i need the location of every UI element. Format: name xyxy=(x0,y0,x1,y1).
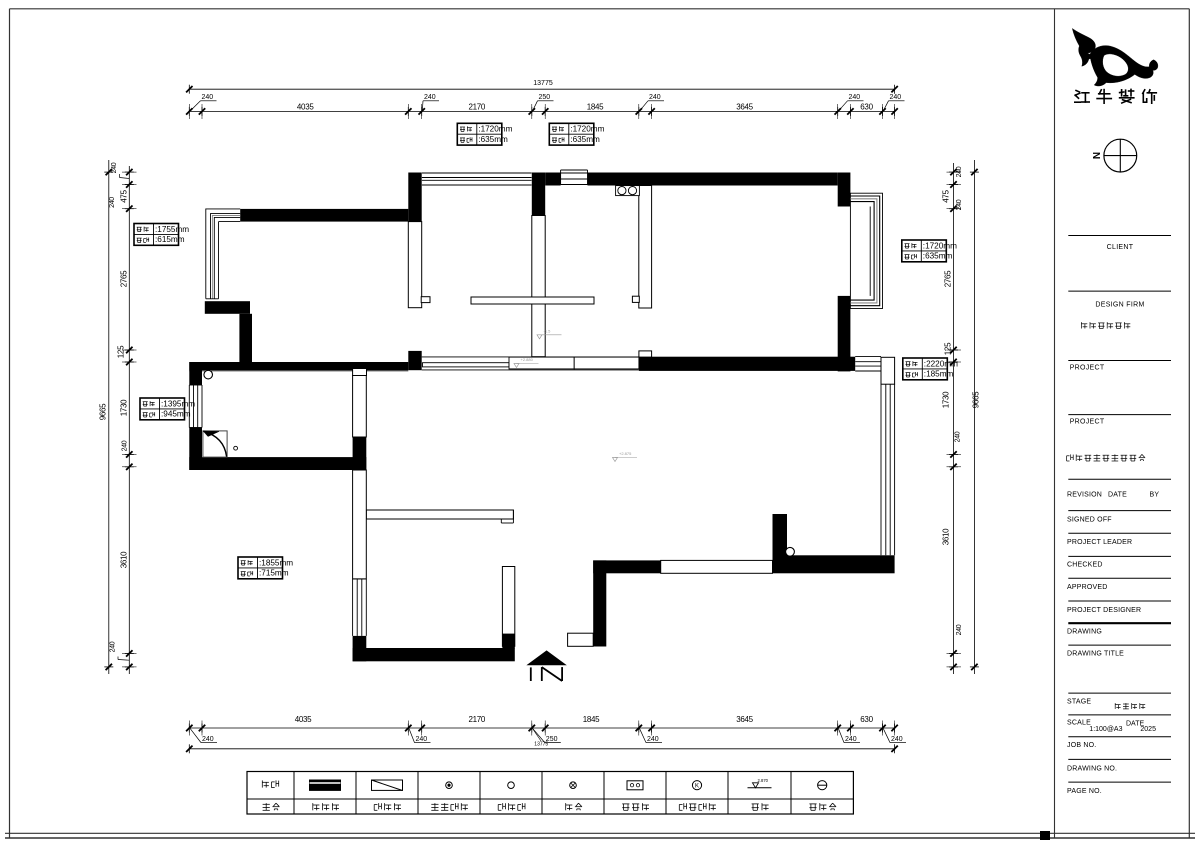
svg-text:K: K xyxy=(695,783,699,789)
svg-text:3645: 3645 xyxy=(736,102,753,111)
svg-text:DESIGN FIRM: DESIGN FIRM xyxy=(1095,301,1144,308)
svg-text:PROJECT: PROJECT xyxy=(1070,365,1105,372)
svg-text:PAGE NO.: PAGE NO. xyxy=(1067,788,1102,795)
svg-text:DATE: DATE xyxy=(1108,491,1127,498)
svg-text::1720mm: :1720mm xyxy=(478,125,512,134)
svg-text:13775: 13775 xyxy=(533,80,553,87)
svg-text:-1.5: -1.5 xyxy=(544,328,552,333)
svg-text:240: 240 xyxy=(647,736,659,743)
svg-text:630: 630 xyxy=(860,102,873,111)
svg-text:2170: 2170 xyxy=(468,715,485,724)
svg-text:3610: 3610 xyxy=(942,528,951,545)
svg-text:3645: 3645 xyxy=(736,715,753,724)
svg-text:240: 240 xyxy=(109,197,116,208)
svg-text:PROJECT DESIGNER: PROJECT DESIGNER xyxy=(1067,607,1141,614)
svg-text:SCALE: SCALE xyxy=(1067,720,1091,727)
svg-text:240: 240 xyxy=(956,624,963,635)
svg-text:2170: 2170 xyxy=(468,102,485,111)
svg-text:PROJECT: PROJECT xyxy=(1070,418,1105,425)
svg-text:STAGE: STAGE xyxy=(1067,699,1091,706)
svg-text:240: 240 xyxy=(649,94,661,101)
svg-text::635mm: :635mm xyxy=(570,135,600,144)
svg-text:240: 240 xyxy=(956,166,963,177)
svg-text::635mm: :635mm xyxy=(478,135,508,144)
svg-text:1845: 1845 xyxy=(587,102,604,111)
svg-text:240: 240 xyxy=(202,94,214,101)
svg-text::185mm: :185mm xyxy=(924,370,954,379)
svg-text:630: 630 xyxy=(860,715,873,724)
svg-text:1730: 1730 xyxy=(942,391,951,408)
svg-text:250: 250 xyxy=(539,94,551,101)
svg-text:1730: 1730 xyxy=(120,399,129,416)
svg-text:13775: 13775 xyxy=(534,742,548,748)
svg-text:240: 240 xyxy=(202,736,214,743)
svg-text:DRAWING: DRAWING xyxy=(1067,629,1102,636)
svg-text:240: 240 xyxy=(891,736,903,743)
svg-text:4035: 4035 xyxy=(297,102,314,111)
svg-text:4035: 4035 xyxy=(295,715,312,724)
svg-text:PROJECT LEADER: PROJECT LEADER xyxy=(1067,539,1132,546)
svg-text:240: 240 xyxy=(955,431,962,442)
svg-text:2.870: 2.870 xyxy=(758,778,769,783)
svg-text:125: 125 xyxy=(117,345,126,358)
svg-text:BY: BY xyxy=(1150,491,1160,498)
svg-text:240: 240 xyxy=(849,94,861,101)
svg-text:240: 240 xyxy=(845,736,857,743)
svg-text::635mm: :635mm xyxy=(923,252,953,261)
svg-text:N: N xyxy=(1092,152,1103,159)
svg-text:2765: 2765 xyxy=(944,270,953,287)
svg-text::1720mm: :1720mm xyxy=(570,125,604,134)
svg-text::1855mm: :1855mm xyxy=(259,558,293,567)
svg-text:DRAWING TITLE: DRAWING TITLE xyxy=(1067,651,1124,658)
svg-text:+2.880: +2.880 xyxy=(521,357,534,362)
svg-text:CHECKED: CHECKED xyxy=(1067,562,1103,569)
svg-text:475: 475 xyxy=(120,189,129,202)
svg-text:240: 240 xyxy=(110,641,117,652)
svg-text:2765: 2765 xyxy=(120,270,129,287)
svg-text:DRAWING NO.: DRAWING NO. xyxy=(1067,765,1117,772)
svg-text::1720mm: :1720mm xyxy=(923,241,957,250)
svg-text:SIGNED OFF: SIGNED OFF xyxy=(1067,517,1112,524)
svg-text:475: 475 xyxy=(942,189,951,202)
svg-text::715mm: :715mm xyxy=(259,569,289,578)
svg-text:REVISION: REVISION xyxy=(1067,491,1102,498)
svg-text:+2.875: +2.875 xyxy=(619,451,632,456)
svg-text:125: 125 xyxy=(944,342,953,355)
svg-text:APPROVED: APPROVED xyxy=(1067,584,1108,591)
svg-text:2025: 2025 xyxy=(1140,726,1156,733)
svg-text:240: 240 xyxy=(956,199,963,210)
svg-text:9665: 9665 xyxy=(99,403,108,420)
svg-text:JOB NO.: JOB NO. xyxy=(1067,742,1096,749)
svg-text::945mm: :945mm xyxy=(161,410,191,419)
svg-text::1395mm: :1395mm xyxy=(161,399,195,408)
svg-text:CLIENT: CLIENT xyxy=(1107,244,1134,251)
svg-text:240: 240 xyxy=(424,94,436,101)
svg-text::1755mm: :1755mm xyxy=(155,225,189,234)
svg-text:240: 240 xyxy=(890,94,902,101)
svg-text:1845: 1845 xyxy=(583,715,600,724)
svg-text::615mm: :615mm xyxy=(155,235,185,244)
svg-text:240: 240 xyxy=(416,736,428,743)
svg-text:240: 240 xyxy=(122,440,129,451)
svg-text:3610: 3610 xyxy=(120,551,129,568)
svg-text:1:100@A3: 1:100@A3 xyxy=(1089,726,1122,733)
svg-text:9665: 9665 xyxy=(972,391,981,408)
